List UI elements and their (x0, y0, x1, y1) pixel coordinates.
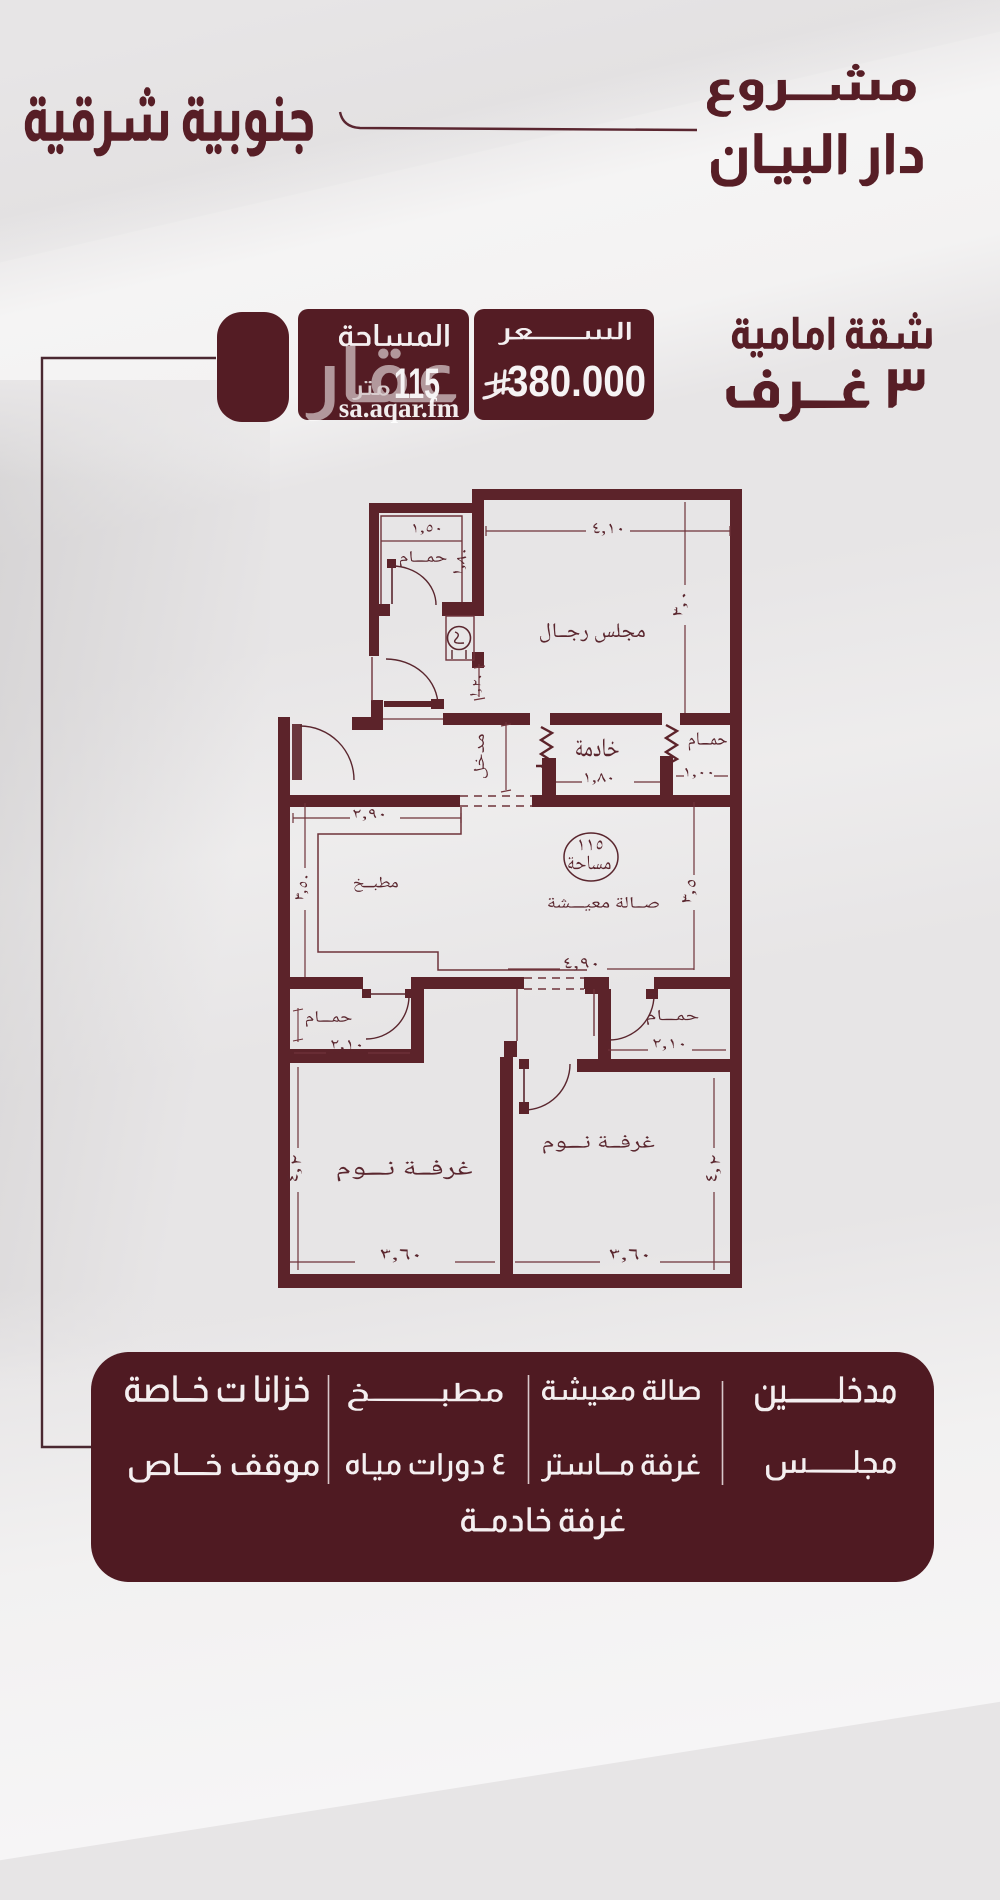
svg-text:380.000: 380.000 (507, 357, 646, 406)
svg-text:sa.aqar.fm: sa.aqar.fm (339, 393, 460, 423)
